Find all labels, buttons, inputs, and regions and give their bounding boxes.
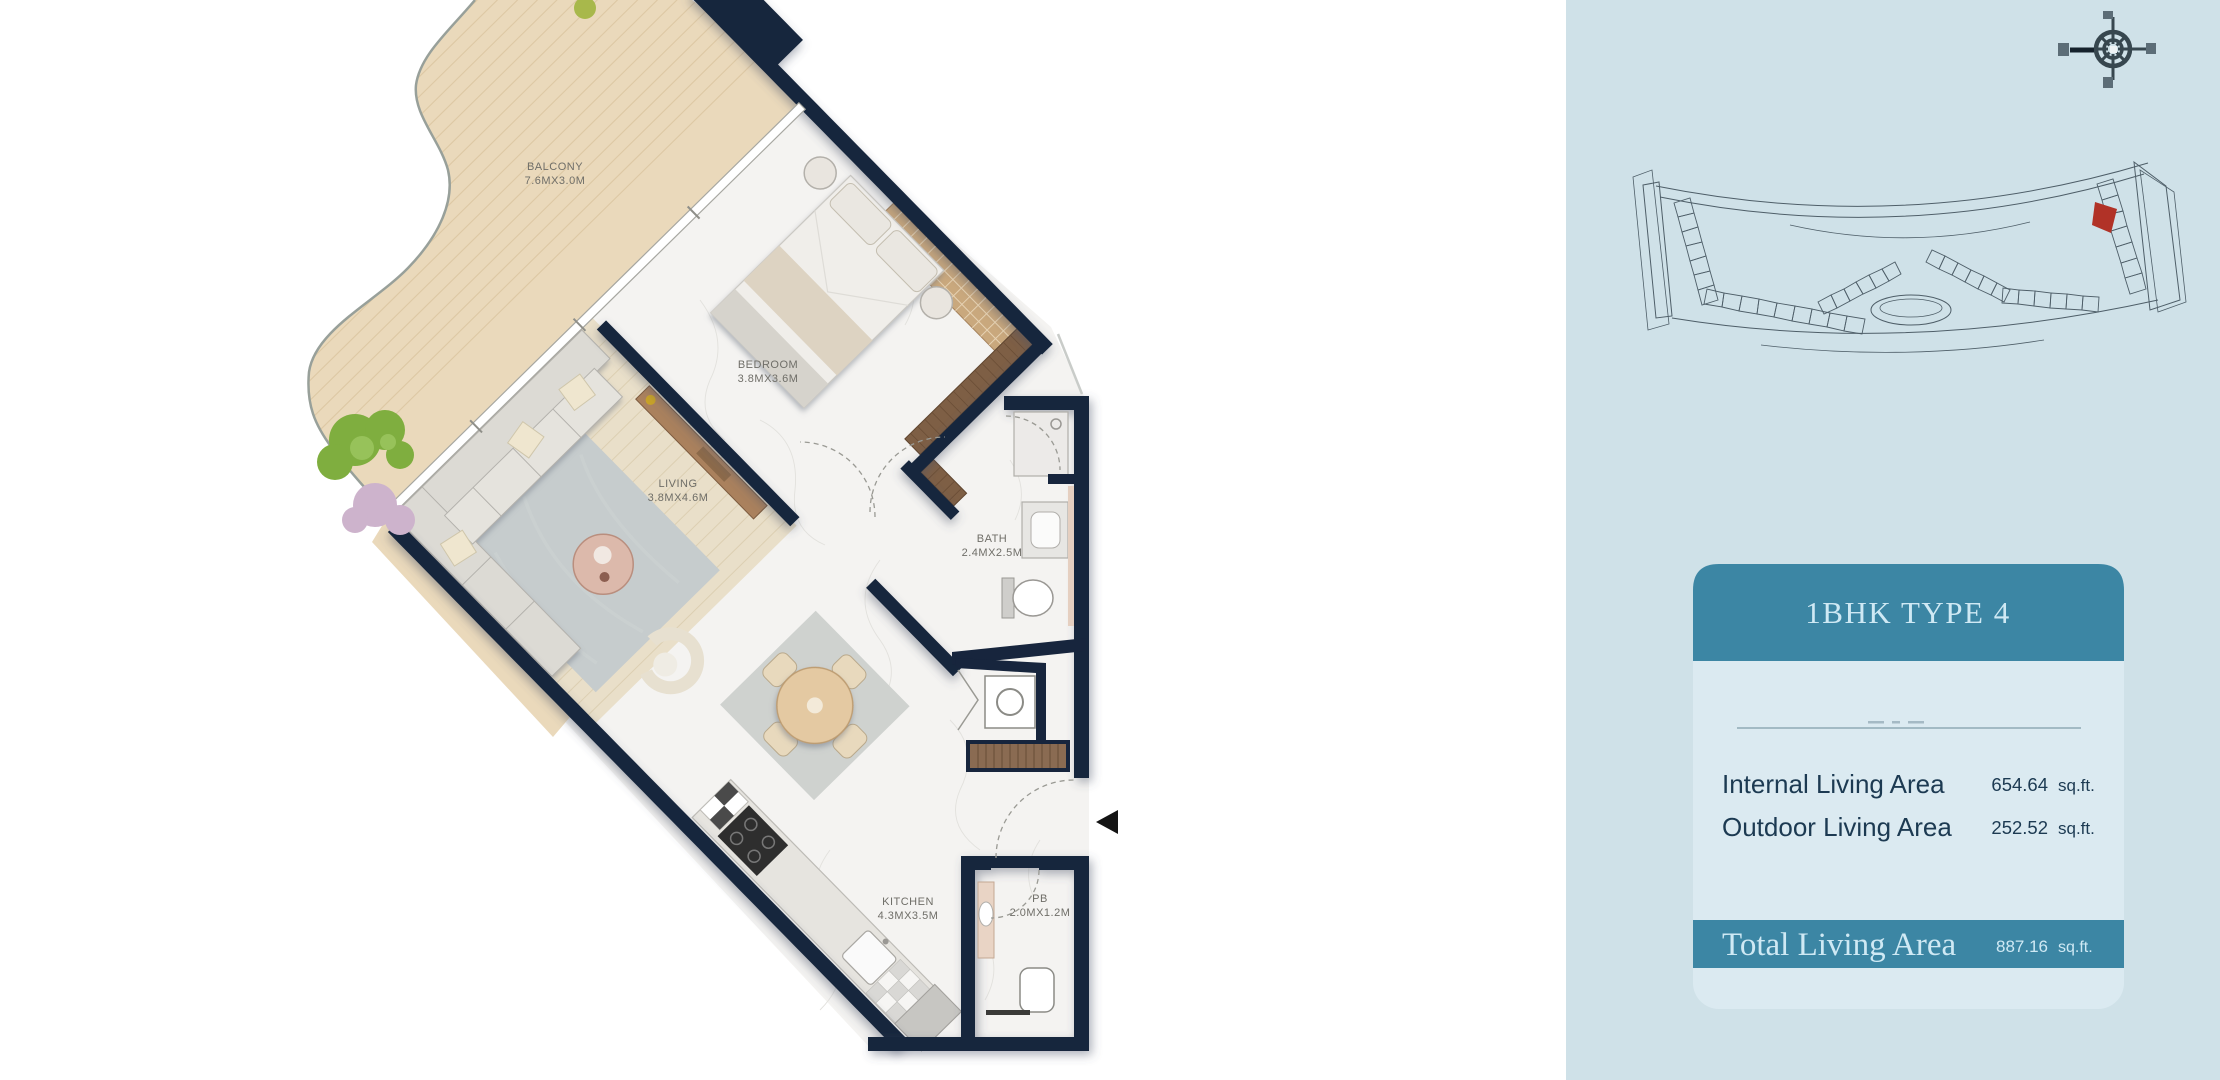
- svg-text:KITCHEN: KITCHEN: [882, 896, 934, 908]
- svg-text:sq.ft.: sq.ft.: [2058, 939, 2093, 956]
- svg-text:Total Living Area: Total Living Area: [1722, 927, 1956, 963]
- svg-text:887.16: 887.16: [1996, 937, 2048, 956]
- svg-text:3.8MX3.6M: 3.8MX3.6M: [738, 373, 799, 385]
- svg-text:654.64: 654.64: [1991, 774, 2048, 795]
- svg-text:BEDROOM: BEDROOM: [738, 359, 798, 371]
- svg-text:Internal Living Area: Internal Living Area: [1722, 769, 1945, 799]
- svg-text:2.0MX1.2M: 2.0MX1.2M: [1010, 907, 1071, 919]
- svg-text:LIVING: LIVING: [658, 478, 697, 490]
- svg-text:sq.ft.: sq.ft.: [2058, 776, 2095, 795]
- svg-text:Outdoor Living Area: Outdoor Living Area: [1722, 812, 1952, 842]
- svg-text:252.52: 252.52: [1991, 817, 2048, 838]
- svg-text:4.3MX3.5M: 4.3MX3.5M: [878, 910, 939, 922]
- svg-text:7.6MX3.0M: 7.6MX3.0M: [525, 175, 586, 187]
- svg-text:1BHK TYPE 4: 1BHK TYPE 4: [1805, 595, 2010, 630]
- svg-text:BALCONY: BALCONY: [527, 161, 583, 173]
- svg-text:PB: PB: [1032, 893, 1048, 905]
- svg-text:2.4MX2.5M: 2.4MX2.5M: [962, 547, 1023, 559]
- svg-text:3.8MX4.6M: 3.8MX4.6M: [648, 492, 709, 504]
- svg-text:BATH: BATH: [977, 533, 1008, 545]
- svg-text:sq.ft.: sq.ft.: [2058, 819, 2095, 838]
